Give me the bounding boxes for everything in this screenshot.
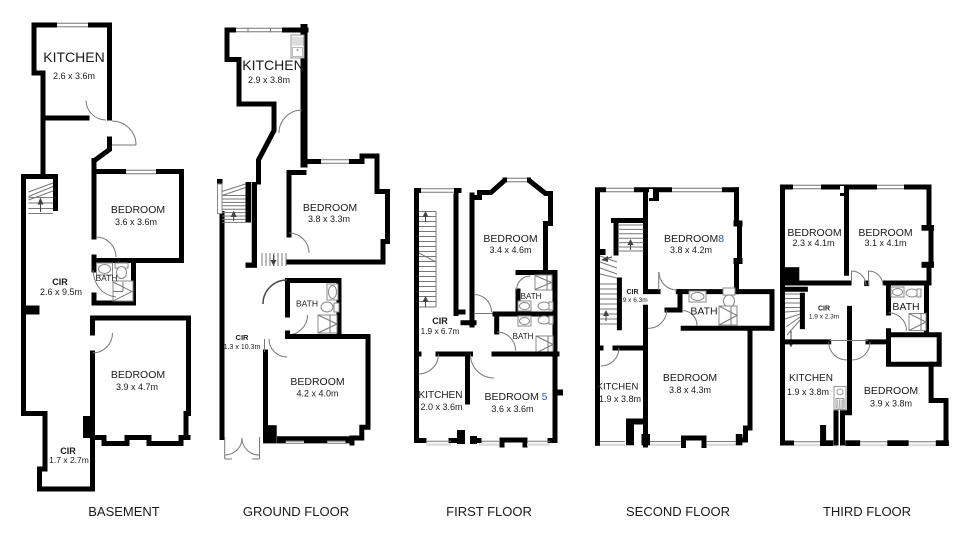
svg-text:CIR: CIR	[52, 277, 68, 287]
svg-text:2.6 x 9.5m: 2.6 x 9.5m	[40, 287, 82, 297]
svg-text:1.9 x 3.8m: 1.9 x 3.8m	[599, 394, 641, 404]
svg-text:KITCHEN: KITCHEN	[242, 57, 303, 73]
svg-text:BEDROOM8: BEDROOM8	[664, 233, 724, 245]
svg-text:KITCHEN: KITCHEN	[419, 390, 463, 401]
svg-text:2.0 x 3.6m: 2.0 x 3.6m	[420, 402, 462, 412]
svg-text:CIR: CIR	[236, 333, 250, 342]
svg-text:KITCHEN: KITCHEN	[597, 382, 639, 393]
svg-text:SECOND FLOOR: SECOND FLOOR	[626, 504, 730, 519]
svg-text:KITCHEN: KITCHEN	[789, 373, 833, 384]
svg-text:2.9 x 3.8m: 2.9 x 3.8m	[248, 75, 290, 85]
svg-text:BEDROOM: BEDROOM	[483, 233, 537, 245]
svg-text:BATH: BATH	[521, 292, 542, 301]
svg-text:CIR: CIR	[432, 316, 448, 326]
svg-text:BEDROOM: BEDROOM	[111, 369, 165, 381]
svg-text:2.6 x 3.6m: 2.6 x 3.6m	[53, 71, 95, 81]
svg-text:3.8 x 3.3m: 3.8 x 3.3m	[308, 214, 350, 224]
svg-text:BATH: BATH	[296, 299, 318, 309]
svg-text:BASEMENT: BASEMENT	[88, 504, 160, 519]
svg-text:BEDROOM: BEDROOM	[111, 204, 165, 216]
svg-text:1.7 x 2.7m: 1.7 x 2.7m	[49, 455, 89, 465]
svg-text:3.4 x 4.6m: 3.4 x 4.6m	[489, 245, 531, 255]
svg-text:THIRD FLOOR: THIRD FLOOR	[823, 504, 911, 519]
svg-text:BEDROOM: BEDROOM	[303, 202, 357, 214]
svg-text:3.8 x 4.3m: 3.8 x 4.3m	[669, 385, 711, 395]
svg-text:1.9 x 2.3m: 1.9 x 2.3m	[809, 314, 839, 321]
svg-text:BEDROOM: BEDROOM	[663, 372, 717, 384]
svg-text:1.9 x 6.7m: 1.9 x 6.7m	[421, 326, 460, 336]
svg-text:3.6 x 3.6m: 3.6 x 3.6m	[491, 404, 533, 414]
svg-text:FIRST FLOOR: FIRST FLOOR	[446, 504, 532, 519]
svg-text:BATH: BATH	[690, 306, 717, 318]
svg-text:BATH: BATH	[513, 332, 534, 341]
svg-text:4.2 x 4.0m: 4.2 x 4.0m	[296, 389, 338, 399]
svg-text:GROUND FLOOR: GROUND FLOOR	[243, 504, 349, 519]
svg-text:KITCHEN: KITCHEN	[43, 49, 104, 65]
svg-text:3.1 x 4.1m: 3.1 x 4.1m	[864, 238, 906, 248]
svg-text:1.9 x 3.8m: 1.9 x 3.8m	[787, 387, 829, 397]
svg-text:BEDROOM 5: BEDROOM 5	[484, 391, 547, 403]
svg-text:1.3 x 10.3m: 1.3 x 10.3m	[224, 344, 261, 351]
svg-text:CIR: CIR	[626, 289, 638, 296]
svg-text:BATH: BATH	[95, 273, 117, 283]
svg-text:1.9 x 6.3m: 1.9 x 6.3m	[617, 297, 647, 304]
svg-text:3.6 x 3.6m: 3.6 x 3.6m	[115, 217, 157, 227]
svg-text:2.3 x 4.1m: 2.3 x 4.1m	[792, 238, 834, 248]
svg-text:BATH: BATH	[892, 301, 919, 313]
svg-text:3.9 x 3.8m: 3.9 x 3.8m	[870, 399, 912, 409]
svg-text:BEDROOM: BEDROOM	[864, 385, 918, 397]
svg-text:3.9 x 4.7m: 3.9 x 4.7m	[116, 382, 158, 392]
svg-text:CIR: CIR	[818, 306, 830, 313]
svg-text:BEDROOM: BEDROOM	[290, 376, 344, 388]
svg-text:3.8 x 4.2m: 3.8 x 4.2m	[670, 245, 712, 255]
